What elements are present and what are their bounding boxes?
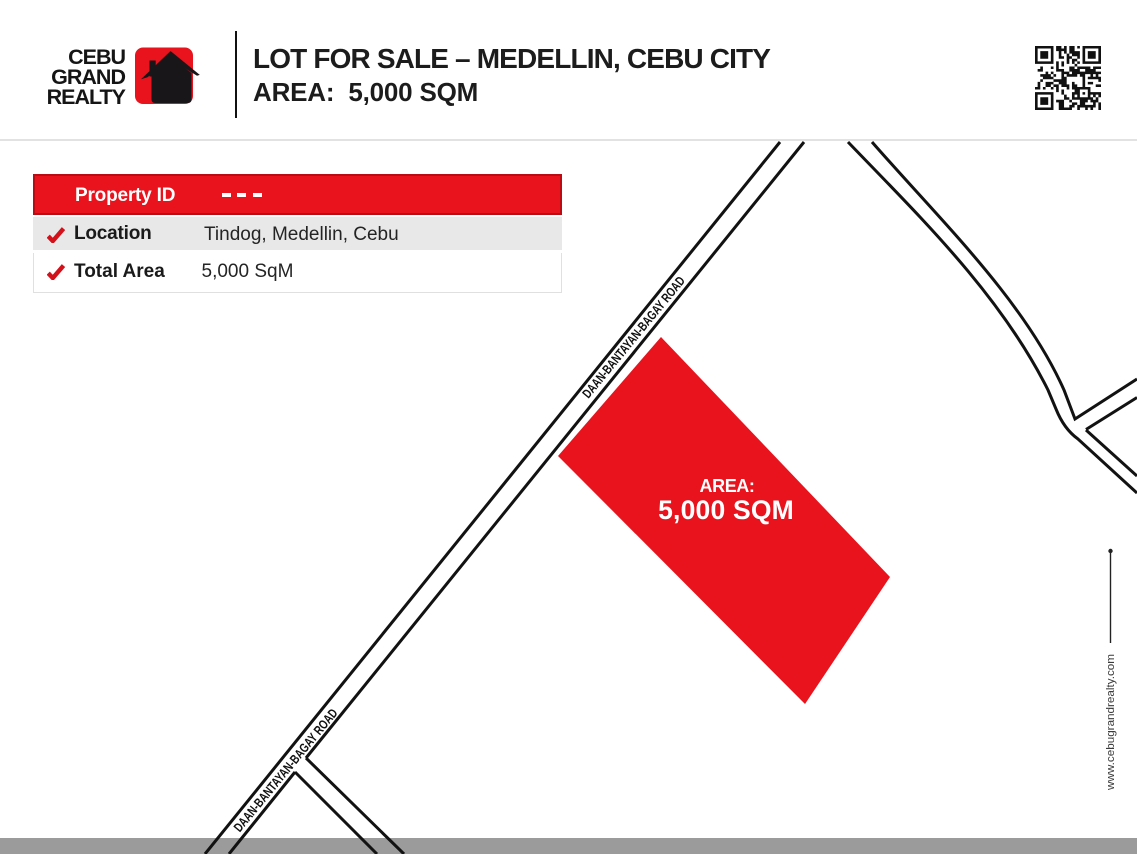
svg-text:www.cebugrandrealty.com: www.cebugrandrealty.com xyxy=(1105,654,1117,791)
svg-text:DAAN-BANTAYAN-BAGAY ROAD: DAAN-BANTAYAN-BAGAY ROAD xyxy=(230,706,340,835)
svg-text:5,000 SQM: 5,000 SQM xyxy=(658,495,794,525)
svg-text:AREA:: AREA: xyxy=(700,476,755,496)
